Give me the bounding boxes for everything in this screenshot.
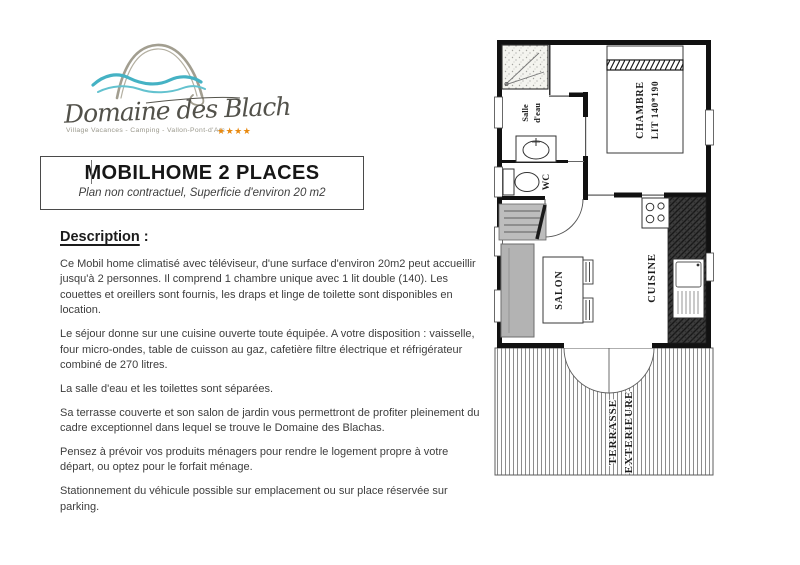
description-paragraph: Sa terrasse couverte et son salon de jar… xyxy=(60,406,484,437)
page-title: MOBILHOME 2 PLACES xyxy=(41,162,363,185)
description-heading-colon: : xyxy=(140,229,149,245)
description-paragraph: La salle d'eau et les toilettes sont sép… xyxy=(60,382,484,397)
pillow xyxy=(607,60,683,70)
description-paragraph: Ce Mobil home climatisé avec téléviseur,… xyxy=(60,257,484,319)
chair xyxy=(583,260,593,284)
document-page: Domaine des Blachas Village Vacances - C… xyxy=(0,0,800,565)
description-paragraph: Stationnement du véhicule possible sur e… xyxy=(60,484,484,515)
logo-name-text: Domaine des Blachas xyxy=(63,91,290,129)
description-paragraph: Le séjour donne sur une cuisine ouverte … xyxy=(60,327,484,373)
page-subtitle: Plan non contractuel, Superficie d'envir… xyxy=(41,187,363,199)
floorplan: TERRASSE EXTERIEURE xyxy=(485,30,725,500)
sink xyxy=(673,259,704,318)
gas-hob xyxy=(642,198,669,228)
logo-tagline-text: Village Vacances - Camping - Vallon-Pont… xyxy=(66,127,225,134)
terrace: TERRASSE EXTERIEURE xyxy=(495,348,713,475)
rating-stars-icon: ★★★★ xyxy=(217,126,251,136)
label-salle-eau-line1: Salle xyxy=(520,104,530,122)
bedroom: CHAMBRE LIT 140*190 xyxy=(607,46,683,153)
label-chambre-line2: LIT 140*190 xyxy=(651,81,661,139)
title-box: MOBILHOME 2 PLACES Plan non contractuel,… xyxy=(40,156,364,210)
label-salle-eau-line2: d'eau xyxy=(532,103,542,123)
river-wave-icon xyxy=(93,75,205,92)
logo-domaine-des-blachas: Domaine des Blachas Village Vacances - C… xyxy=(38,30,290,140)
label-salon: SALON xyxy=(554,270,565,309)
description-heading-word: Description xyxy=(60,229,140,245)
label-cuisine: CUISINE xyxy=(647,253,658,302)
text-cursor-artifact xyxy=(91,160,92,184)
storage-unit xyxy=(499,204,546,240)
chair xyxy=(583,298,593,322)
shower xyxy=(502,45,548,89)
description-heading: Description : xyxy=(60,229,149,245)
washbasin xyxy=(516,136,556,162)
label-chambre-line1: CHAMBRE xyxy=(635,81,646,139)
description-body: Ce Mobil home climatisé avec téléviseur,… xyxy=(60,257,484,524)
description-paragraph: Pensez à prévoir vos produits ménagers p… xyxy=(60,445,484,476)
label-terrasse-line1: TERRASSE xyxy=(607,399,619,465)
label-wc: WC xyxy=(542,174,552,191)
label-terrasse-line2: EXTERIEURE xyxy=(623,391,635,474)
sofa xyxy=(501,244,534,337)
